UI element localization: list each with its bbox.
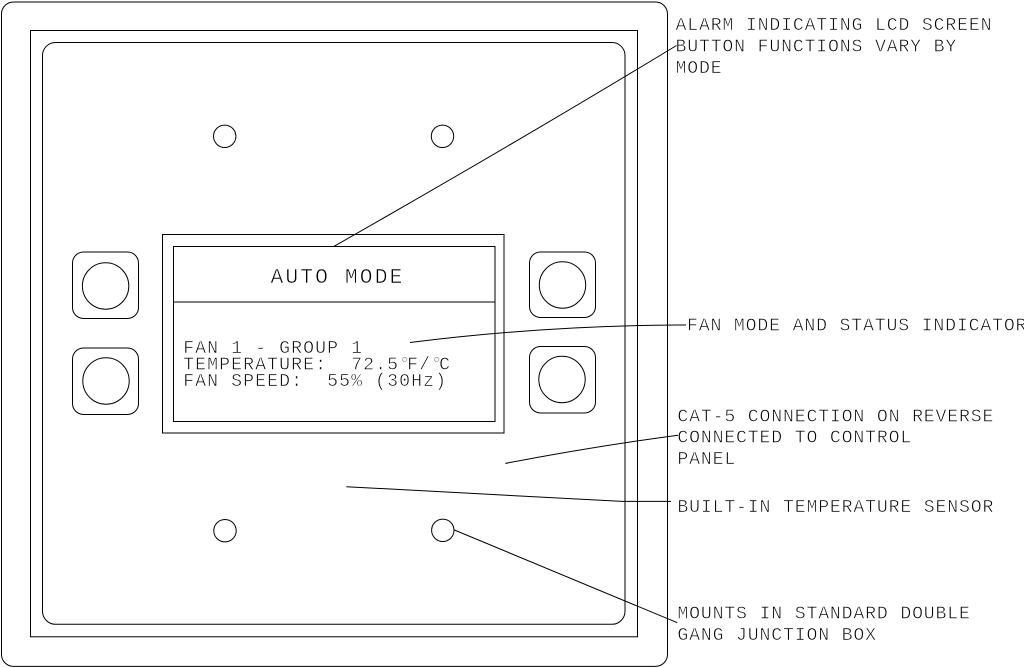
svg-text:AUTO MODE: AUTO MODE <box>271 266 405 290</box>
svg-text:CAT-5 CONNECTION ON REVERSE: CAT-5 CONNECTION ON REVERSE <box>677 407 994 427</box>
svg-text:PANEL: PANEL <box>677 450 736 470</box>
svg-text:GANG JUNCTION BOX: GANG JUNCTION BOX <box>677 626 876 646</box>
svg-text:FAN MODE AND STATUS INDICATOR: FAN MODE AND STATUS INDICATOR <box>687 317 1024 337</box>
svg-text:FAN SPEED: 55% (30Hz): FAN SPEED: 55% (30Hz) <box>183 372 447 392</box>
svg-text:MODE: MODE <box>676 59 723 79</box>
svg-text:CONNECTED TO CONTROL: CONNECTED TO CONTROL <box>677 429 912 449</box>
svg-text:BUILT-IN TEMPERATURE SENSOR: BUILT-IN TEMPERATURE SENSOR <box>677 498 994 518</box>
svg-text:MOUNTS IN STANDARD DOUBLE: MOUNTS IN STANDARD DOUBLE <box>677 604 970 624</box>
svg-text:BUTTON FUNCTIONS VARY BY: BUTTON FUNCTIONS VARY BY <box>676 37 958 57</box>
svg-text:ALARM INDICATING LCD SCREEN: ALARM INDICATING LCD SCREEN <box>676 16 993 36</box>
